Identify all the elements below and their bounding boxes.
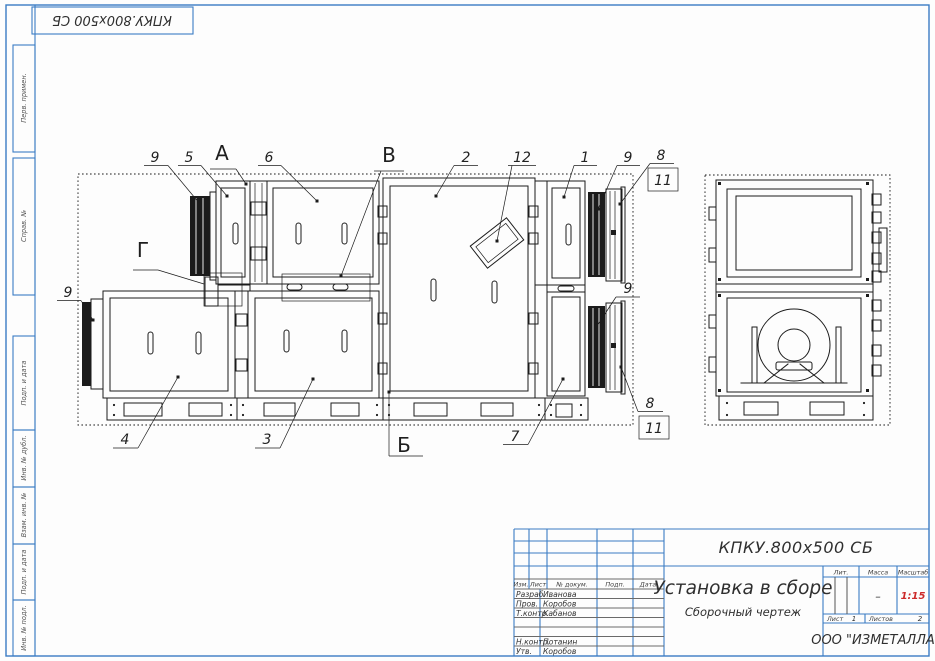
svg-text:11: 11 — [645, 421, 663, 437]
module-right-bottom — [547, 292, 585, 396]
corner-stamp-text: КПКУ.800х500 СБ — [52, 12, 172, 27]
header-scale: Масштаб — [898, 569, 928, 577]
side-top-section — [716, 180, 873, 284]
callout-zone-b: Б — [388, 391, 424, 458]
sheets-value: 2 — [918, 615, 923, 623]
callout-zone-v: В — [340, 143, 405, 278]
svg-text:В: В — [382, 143, 396, 167]
header-lit: Лит. — [833, 569, 849, 577]
access-hatch — [470, 218, 523, 268]
header-izm: Изм. — [513, 581, 528, 589]
module-right-top — [535, 181, 585, 285]
sig-role: Утв. — [516, 647, 532, 656]
svg-text:8: 8 — [657, 148, 666, 164]
header-podp: Подп. — [605, 581, 624, 589]
sig-name: Коробов — [543, 647, 577, 656]
sheet-value: 1 — [852, 615, 856, 623]
side-mid-rail — [716, 284, 873, 292]
svg-text:9: 9 — [151, 150, 160, 166]
svg-text:6: 6 — [265, 150, 274, 166]
side-hinges-left — [709, 207, 716, 372]
side-view — [705, 175, 890, 425]
title-block: Изм. Лист № докум. Подп. Дата Разраб. Ив… — [513, 529, 935, 656]
callout-11-top-box: 11 — [648, 168, 678, 191]
module-central — [378, 178, 538, 398]
module-bottom-left — [103, 291, 235, 398]
sig-name: Иванова — [543, 590, 577, 599]
connector-bottom — [235, 291, 248, 398]
callout-11-bottom-box: 11 — [639, 416, 669, 439]
module-right-joint — [547, 285, 585, 292]
svg-text:9: 9 — [624, 150, 633, 166]
margin-fields: Перв. примен. Справ. № Подп. и дата Инв.… — [13, 45, 35, 656]
sig-name: Потанин — [543, 638, 577, 647]
sheets-label: Листов — [868, 615, 893, 623]
outlet-top-assembly — [588, 187, 625, 283]
main-view — [78, 174, 633, 425]
doc-number: КПКУ.800х500 СБ — [719, 538, 874, 557]
svg-text:9: 9 — [624, 281, 633, 297]
svg-text:3: 3 — [263, 432, 272, 448]
inlet-flange-left — [82, 299, 103, 389]
side-latches-right — [872, 194, 887, 376]
sig-role: Разраб. — [516, 590, 546, 599]
callout-7: 7 — [503, 378, 565, 446]
outlet-bottom-assembly — [588, 301, 625, 394]
sheet-label: Лист — [826, 615, 843, 623]
svg-text:1: 1 — [581, 150, 590, 166]
svg-text:8: 8 — [646, 396, 655, 412]
svg-text:2: 2 — [462, 150, 471, 166]
header-doc: № докум. — [555, 581, 588, 589]
callout-4: 4 — [113, 376, 180, 449]
sheet-frame — [6, 5, 929, 656]
sig-name: Коробов — [543, 600, 577, 609]
header-list: Лист — [529, 581, 546, 589]
margin-field-inv-podl: Инв. № подл. — [20, 605, 28, 651]
side-base-frame — [719, 396, 873, 420]
margin-field-podp1: Подп. и дата — [20, 361, 28, 406]
corner-stamp: КПКУ.800х500 СБ — [32, 7, 193, 34]
signature-rows: Разраб. Иванова Пров. Коробов Т.контр. К… — [516, 590, 577, 656]
header-mass: Масса — [868, 569, 888, 577]
scale-value: 1:15 — [901, 591, 926, 602]
side-fan-section — [716, 292, 873, 396]
base-frame — [107, 398, 588, 420]
company-name: ООО "ИЗМЕТАЛЛА" — [811, 633, 935, 648]
module-bottom-mid — [248, 291, 379, 398]
margin-field-inv-dubl: Инв. № дубл. — [20, 435, 28, 480]
doc-title: Установка в сборе — [653, 578, 832, 599]
svg-text:Б: Б — [397, 433, 411, 457]
sig-name: Кабанов — [543, 609, 577, 618]
drawing-sheet: Перв. примен. Справ. № Подп. и дата Инв.… — [0, 0, 935, 661]
module-top-mid — [267, 181, 379, 284]
sig-role: Пров. — [516, 600, 538, 609]
margin-field-perv: Перв. примен. — [20, 73, 28, 123]
callout-zone-a: А — [210, 141, 248, 186]
zone-box-v — [282, 274, 370, 301]
connector-top-1 — [250, 181, 267, 284]
module-top-left — [216, 181, 250, 284]
svg-text:А: А — [215, 141, 229, 165]
doc-type: Сборочный чертеж — [685, 605, 802, 619]
drawing-canvas: Перв. примен. Справ. № Подп. и дата Инв.… — [0, 0, 935, 661]
svg-text:5: 5 — [185, 150, 194, 166]
inlet-louver-top — [190, 192, 216, 280]
svg-text:11: 11 — [654, 173, 672, 189]
margin-field-sprav: Справ. № — [20, 210, 28, 242]
svg-text:4: 4 — [121, 432, 130, 448]
svg-text:12: 12 — [513, 150, 531, 166]
svg-text:9: 9 — [64, 285, 73, 301]
mass-value: – — [875, 590, 881, 603]
margin-field-podp2: Подп. и дата — [20, 550, 28, 595]
callout-12: 12 — [496, 150, 537, 243]
svg-text:7: 7 — [511, 429, 520, 445]
margin-field-vzam: Взам. инв. № — [20, 492, 28, 537]
svg-text:Г: Г — [137, 238, 149, 262]
callout-8-bottom: 8 — [620, 366, 664, 413]
